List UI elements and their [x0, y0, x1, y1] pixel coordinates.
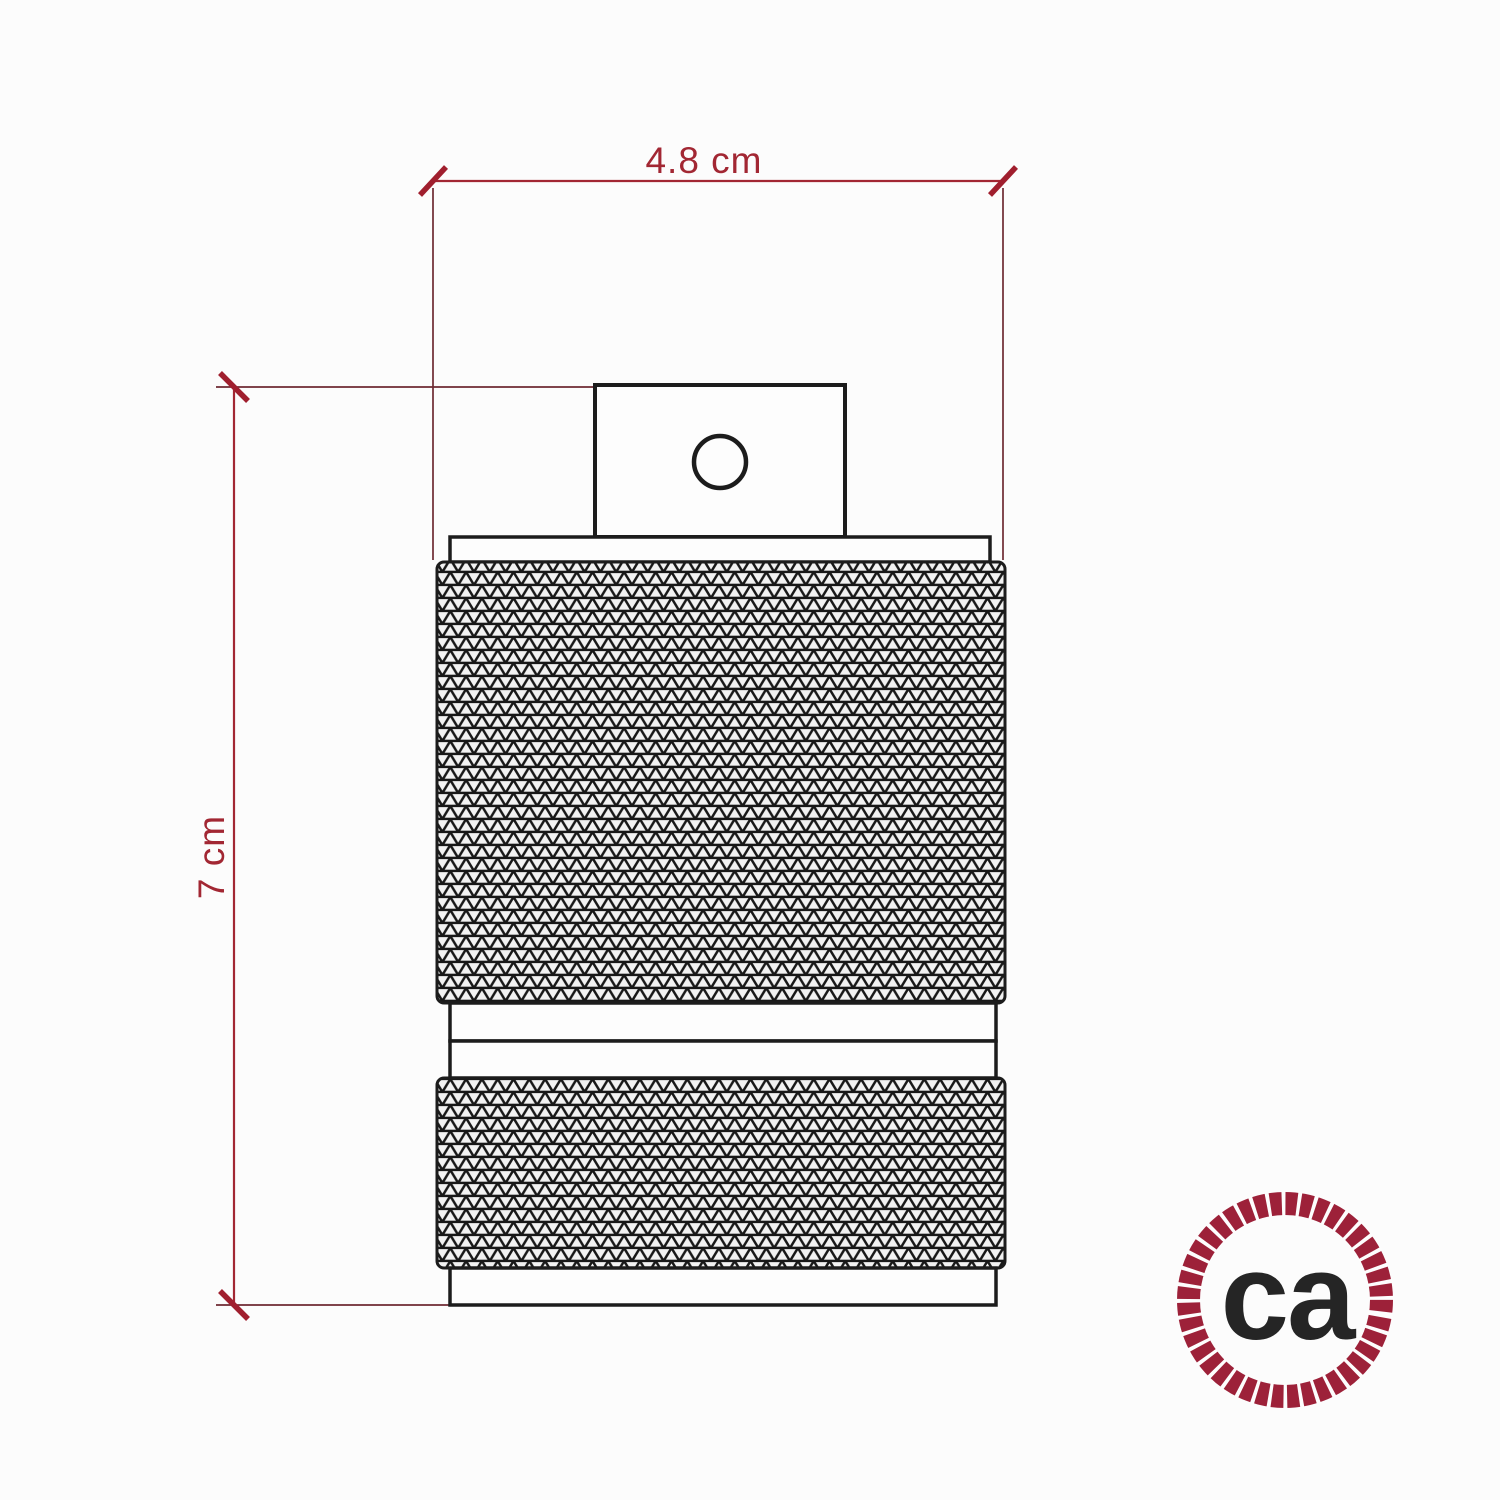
- top-flange: [450, 537, 990, 562]
- height-dimension-label: 7 cm: [191, 815, 232, 899]
- lamp-holder-body: [437, 385, 1005, 1305]
- smooth-ring-lower: [450, 1041, 996, 1078]
- knurled-shell-upper: [437, 562, 1005, 1003]
- dimension-diagram: 4.8 cm 7 cm ca: [0, 0, 1500, 1500]
- width-dimension-label: 4.8 cm: [645, 140, 762, 181]
- creative-cables-logo: ca: [1176, 1191, 1394, 1409]
- cable-clamp-hole: [694, 436, 746, 488]
- knurled-ring-lower: [437, 1078, 1005, 1268]
- lamp-holder-technical-drawing: 4.8 cm 7 cm ca: [0, 0, 1500, 1500]
- logo-text: ca: [1221, 1229, 1357, 1366]
- smooth-ring-upper: [450, 1003, 996, 1041]
- base-ring: [450, 1268, 996, 1305]
